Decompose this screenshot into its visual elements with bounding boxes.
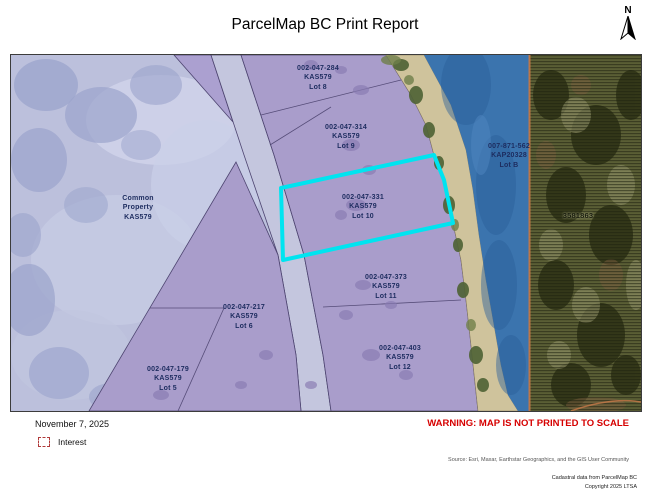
parcel-lot: Lot 10 bbox=[342, 212, 384, 221]
north-label: N bbox=[616, 5, 640, 16]
parcel-pid: 002-047-179 bbox=[147, 365, 189, 374]
parcel-plan: KAS579 bbox=[365, 282, 407, 291]
parcel-lot: Lot 11 bbox=[365, 292, 407, 301]
parcel-lot: Lot B bbox=[488, 161, 530, 170]
common-line: KAS579 bbox=[122, 213, 154, 222]
copyright-line-2: Copyright 2025 LTSA bbox=[552, 483, 637, 492]
map-canvas: 002-047-284 KAS579 Lot 8 002-047-314 KAS… bbox=[10, 54, 642, 412]
parcel-lot: Lot 6 bbox=[223, 322, 265, 331]
parcel-label-lot10: 002-047-331 KAS579 Lot 10 bbox=[342, 193, 384, 221]
parcel-pid: 002-047-373 bbox=[365, 273, 407, 282]
parcel-plan: KAS579 bbox=[342, 202, 384, 211]
common-line: Property bbox=[122, 203, 154, 212]
copyright-credit: Cadastral data from ParcelMap BC Copyrig… bbox=[552, 474, 637, 492]
parcel-label-lotb: 007-871-562 KAP20328 Lot B bbox=[488, 142, 530, 170]
parcel-label-lot11: 002-047-373 KAS579 Lot 11 bbox=[365, 273, 407, 301]
common-property-label: Common Property KAS579 bbox=[122, 194, 154, 222]
parcel-plan: KAS579 bbox=[147, 374, 189, 383]
map-imagery bbox=[11, 55, 641, 411]
parcel-label-lot8: 002-047-284 KAS579 Lot 8 bbox=[297, 64, 339, 92]
parcel-plan: KAP20328 bbox=[488, 151, 530, 160]
parcel-label-lot9: 002-047-314 KAS579 Lot 9 bbox=[325, 123, 367, 151]
report-date: November 7, 2025 bbox=[35, 419, 109, 429]
parcel-plan: KAS579 bbox=[297, 73, 339, 82]
parcel-pid: 007-871-562 bbox=[488, 142, 530, 151]
parcel-plan: KAS579 bbox=[223, 312, 265, 321]
parcel-lot: Lot 8 bbox=[297, 83, 339, 92]
parcel-lot: Lot 5 bbox=[147, 384, 189, 393]
common-line: Common bbox=[122, 194, 154, 203]
crown-parcel-label: 3581863 bbox=[563, 211, 594, 221]
parcel-pid: 002-047-284 bbox=[297, 64, 339, 73]
parcel-pid: 002-047-314 bbox=[325, 123, 367, 132]
forest-layer bbox=[529, 55, 641, 411]
imagery-source-credit: Source: Esri, Maxar, Earthstar Geographi… bbox=[448, 457, 629, 463]
parcel-lot: Lot 9 bbox=[325, 142, 367, 151]
parcel-label-lot6: 002-047-217 KAS579 Lot 6 bbox=[223, 303, 265, 331]
legend-interest-label: Interest bbox=[58, 437, 86, 447]
parcel-pid: 002-047-331 bbox=[342, 193, 384, 202]
parcel-label-lot5: 002-047-179 KAS579 Lot 5 bbox=[147, 365, 189, 393]
interest-swatch-icon bbox=[38, 437, 50, 447]
parcelmap-print-report: ParcelMap BC Print Report N bbox=[0, 0, 650, 502]
parcel-plan: KAS579 bbox=[325, 132, 367, 141]
parcel-pid: 002-047-217 bbox=[223, 303, 265, 312]
scale-warning: WARNING: MAP IS NOT PRINTED TO SCALE bbox=[427, 418, 629, 429]
north-arrow-icon bbox=[620, 16, 636, 40]
parcel-label-lot12: 002-047-403 KAS579 Lot 12 bbox=[379, 344, 421, 372]
page-title: ParcelMap BC Print Report bbox=[0, 16, 650, 34]
parcel-plan: KAS579 bbox=[379, 353, 421, 362]
north-arrow: N bbox=[616, 5, 640, 45]
parcel-lot: Lot 12 bbox=[379, 363, 421, 372]
parcel-pid: 002-047-403 bbox=[379, 344, 421, 353]
copyright-line-1: Cadastral data from ParcelMap BC bbox=[552, 474, 637, 483]
